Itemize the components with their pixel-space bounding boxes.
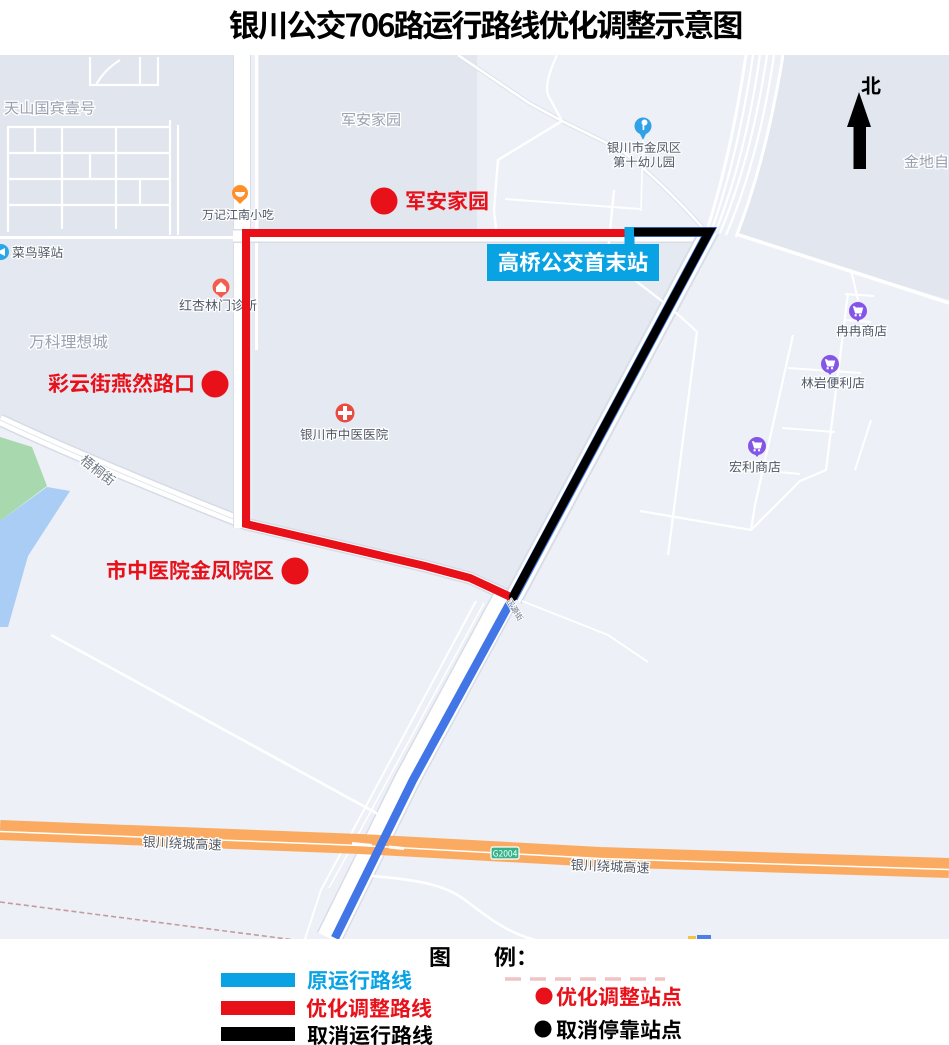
svg-text:万记江南小吃: 万记江南小吃 bbox=[202, 206, 274, 223]
svg-text:金地自: 金地自 bbox=[904, 151, 949, 172]
svg-text:取消运行路线: 取消运行路线 bbox=[307, 1020, 433, 1045]
svg-text:G2004: G2004 bbox=[493, 848, 518, 860]
svg-text:银川绕城高速: 银川绕城高速 bbox=[142, 831, 222, 853]
svg-text:宏利商店: 宏利商店 bbox=[729, 457, 781, 476]
svg-text:优化调整路线: 优化调整路线 bbox=[306, 993, 432, 1023]
svg-text:万科理想城: 万科理想城 bbox=[29, 330, 108, 353]
svg-text:军安家园: 军安家园 bbox=[405, 186, 489, 216]
svg-text:第十幼儿园: 第十幼儿园 bbox=[613, 153, 675, 171]
svg-text:彩云街燕然路口: 彩云街燕然路口 bbox=[48, 368, 195, 398]
svg-text:北: 北 bbox=[861, 70, 881, 99]
svg-text:银川市中医医院: 银川市中医医院 bbox=[300, 424, 389, 443]
svg-text:银川公交706路运行路线优化调整示意图: 银川公交706路运行路线优化调整示意图 bbox=[229, 1, 742, 46]
svg-text:天山国宾壹号: 天山国宾壹号 bbox=[4, 97, 95, 119]
svg-text:原运行路线: 原运行路线 bbox=[307, 965, 412, 995]
svg-text:取消停靠站点: 取消停靠站点 bbox=[556, 1015, 682, 1045]
svg-text:例：: 例： bbox=[494, 940, 538, 972]
svg-text:银川绕城高速: 银川绕城高速 bbox=[570, 854, 650, 876]
svg-text:图: 图 bbox=[429, 940, 451, 972]
svg-text:冉冉商店: 冉冉商店 bbox=[836, 321, 887, 340]
svg-text:林岩便利店: 林岩便利店 bbox=[801, 373, 865, 392]
svg-text:市中医院金凤院区: 市中医院金凤院区 bbox=[106, 555, 274, 585]
svg-text:高桥公交首末站: 高桥公交首末站 bbox=[498, 246, 649, 277]
svg-text:优化调整站点: 优化调整站点 bbox=[556, 982, 682, 1012]
svg-text:军安家园: 军安家园 bbox=[341, 109, 401, 130]
svg-text:菜鸟驿站: 菜鸟驿站 bbox=[12, 242, 63, 261]
